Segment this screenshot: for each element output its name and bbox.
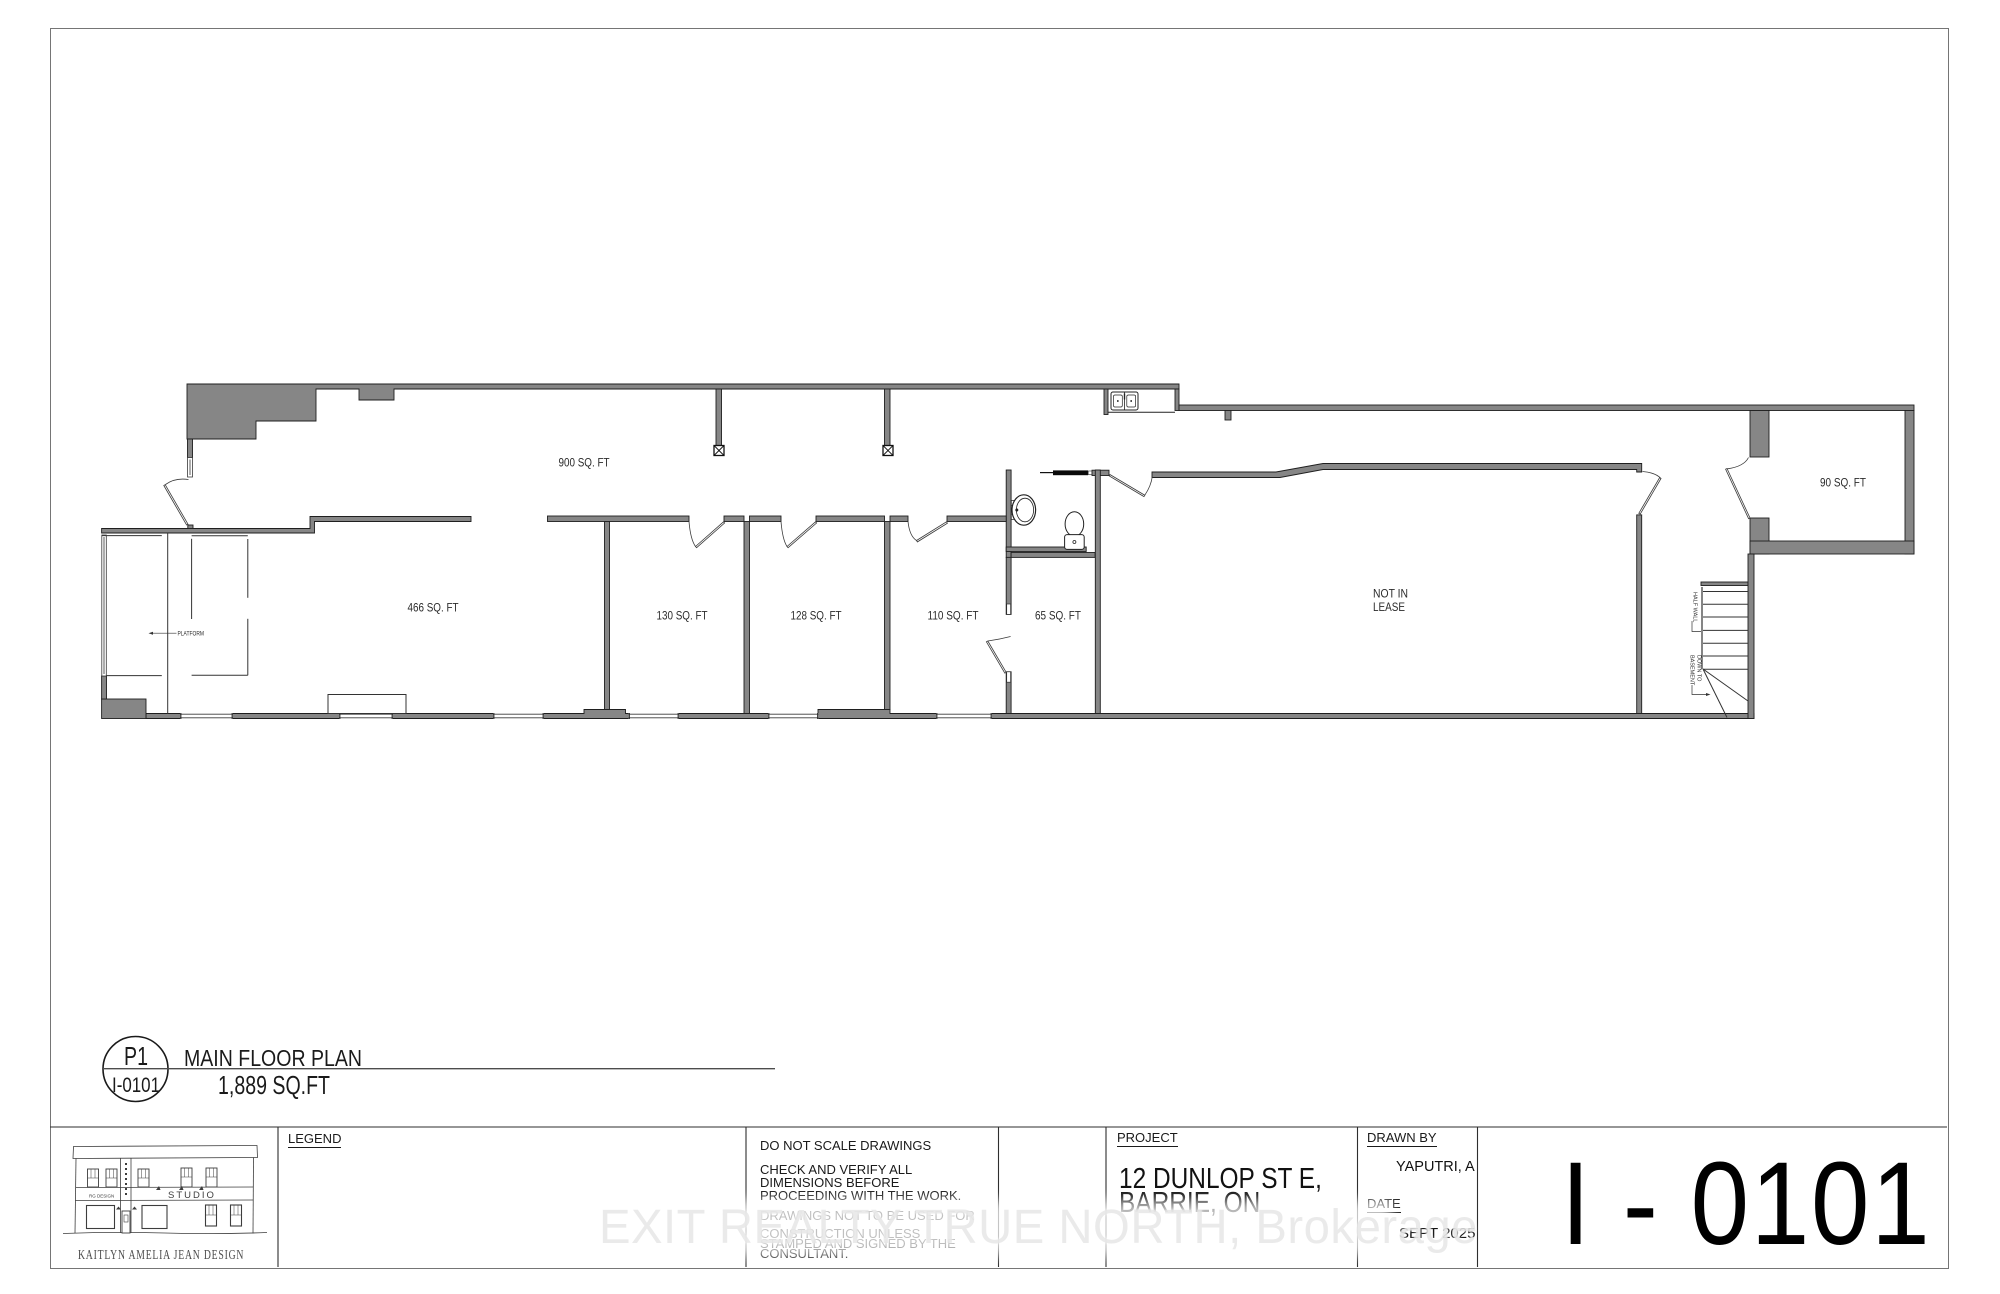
svg-text:RG DESIGN: RG DESIGN [89, 1194, 114, 1199]
svg-text:STUDIO: STUDIO [168, 1190, 216, 1201]
